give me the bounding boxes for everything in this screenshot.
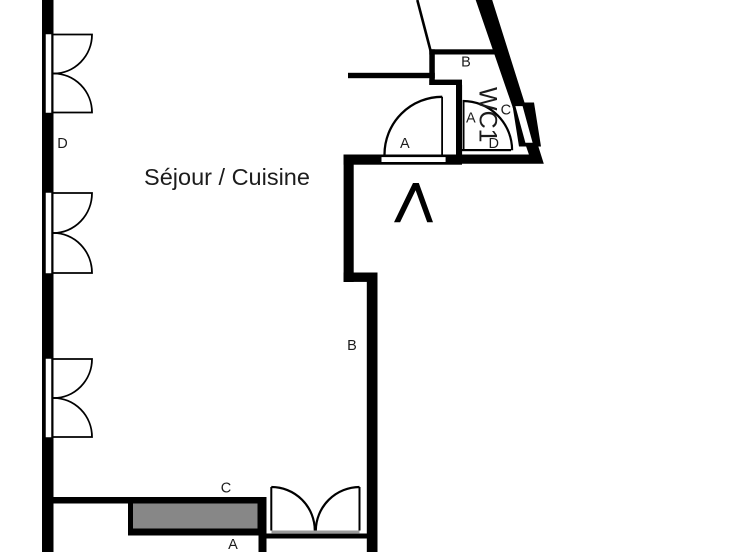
svg-text:D: D [57, 136, 67, 152]
svg-text:B: B [461, 54, 471, 70]
svg-text:WC1: WC1 [474, 87, 502, 143]
svg-text:C: C [221, 481, 231, 497]
svg-text:B: B [347, 338, 357, 354]
svg-text:A: A [228, 537, 238, 552]
svg-text:A: A [400, 136, 410, 152]
svg-text:Séjour / Cuisine: Séjour / Cuisine [144, 164, 310, 190]
